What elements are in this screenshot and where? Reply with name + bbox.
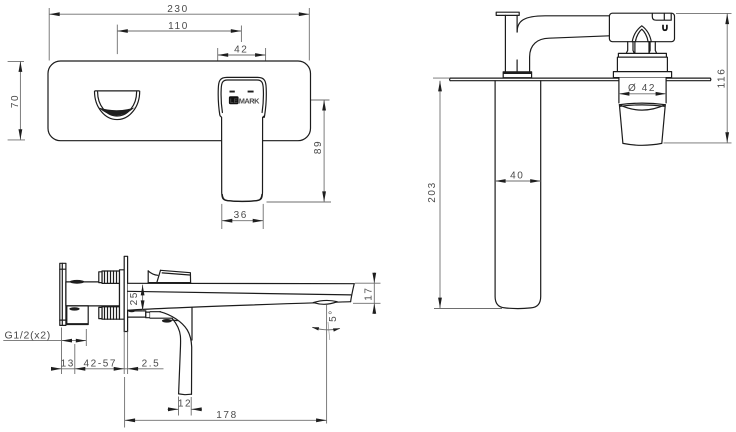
svg-text:13: 13: [61, 358, 75, 369]
svg-text:5°: 5°: [328, 309, 339, 322]
svg-text:2.5: 2.5: [142, 358, 161, 369]
svg-text:17: 17: [363, 286, 374, 300]
svg-text:G1/2(x2): G1/2(x2): [5, 329, 51, 341]
svg-text:MARK: MARK: [239, 97, 260, 106]
svg-text:203: 203: [427, 181, 438, 203]
svg-text:40: 40: [510, 171, 524, 182]
svg-text:116: 116: [716, 68, 727, 89]
svg-text:110: 110: [168, 21, 189, 32]
svg-text:70: 70: [10, 94, 21, 108]
svg-text:12: 12: [178, 399, 192, 410]
svg-text:42-57: 42-57: [84, 358, 118, 369]
svg-text:42: 42: [234, 44, 248, 55]
svg-text:36: 36: [234, 210, 248, 221]
svg-text:LE: LE: [230, 98, 238, 105]
svg-text:25: 25: [129, 291, 140, 305]
svg-text:178: 178: [216, 410, 238, 421]
svg-text:230: 230: [167, 4, 189, 15]
svg-text:89: 89: [313, 140, 324, 154]
svg-text:Ø 42: Ø 42: [628, 83, 656, 94]
